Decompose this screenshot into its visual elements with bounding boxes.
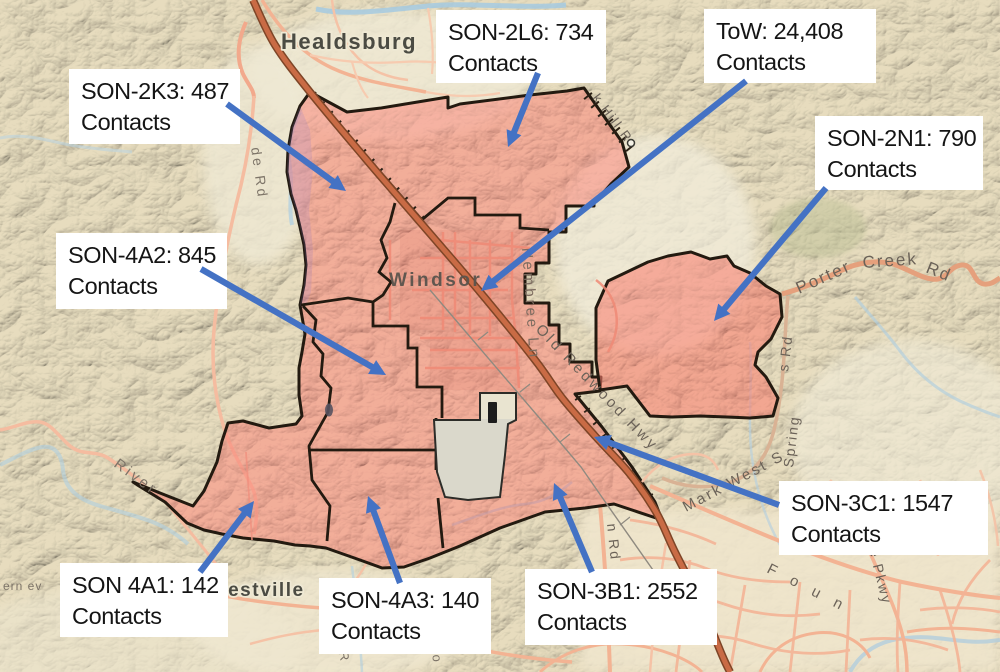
- svg-text:SON-3C1: 1547: SON-3C1: 1547: [791, 490, 953, 516]
- svg-text:SON-4A2: 845: SON-4A2: 845: [68, 242, 216, 268]
- svg-text:SON-2K3: 487: SON-2K3: 487: [81, 78, 229, 104]
- svg-text:ern ev: ern ev: [3, 579, 42, 593]
- svg-text:SON-3B1: 2552: SON-3B1: 2552: [537, 578, 698, 604]
- svg-text:Creek: Creek: [862, 249, 919, 272]
- svg-text:Contacts: Contacts: [716, 49, 806, 75]
- svg-text:Contacts: Contacts: [72, 603, 162, 629]
- svg-text:SON-2N1: 790: SON-2N1: 790: [827, 125, 977, 151]
- svg-text:Contacts: Contacts: [68, 273, 158, 299]
- svg-text:Contacts: Contacts: [331, 618, 421, 644]
- svg-text:Healdsburg: Healdsburg: [281, 29, 417, 54]
- svg-text:SON 4A1: 142: SON 4A1: 142: [72, 572, 219, 598]
- svg-text:ToW: 24,408: ToW: 24,408: [716, 18, 843, 44]
- svg-text:Windsor: Windsor: [389, 270, 482, 291]
- svg-text:Contacts: Contacts: [791, 521, 881, 547]
- svg-text:SON-4A3: 140: SON-4A3: 140: [331, 587, 479, 613]
- svg-text:Contacts: Contacts: [827, 156, 917, 182]
- svg-text:SON-2L6: 734: SON-2L6: 734: [448, 19, 594, 45]
- svg-text:Contacts: Contacts: [81, 109, 171, 135]
- svg-text:Contacts: Contacts: [448, 50, 538, 76]
- svg-text:Contacts: Contacts: [537, 609, 627, 635]
